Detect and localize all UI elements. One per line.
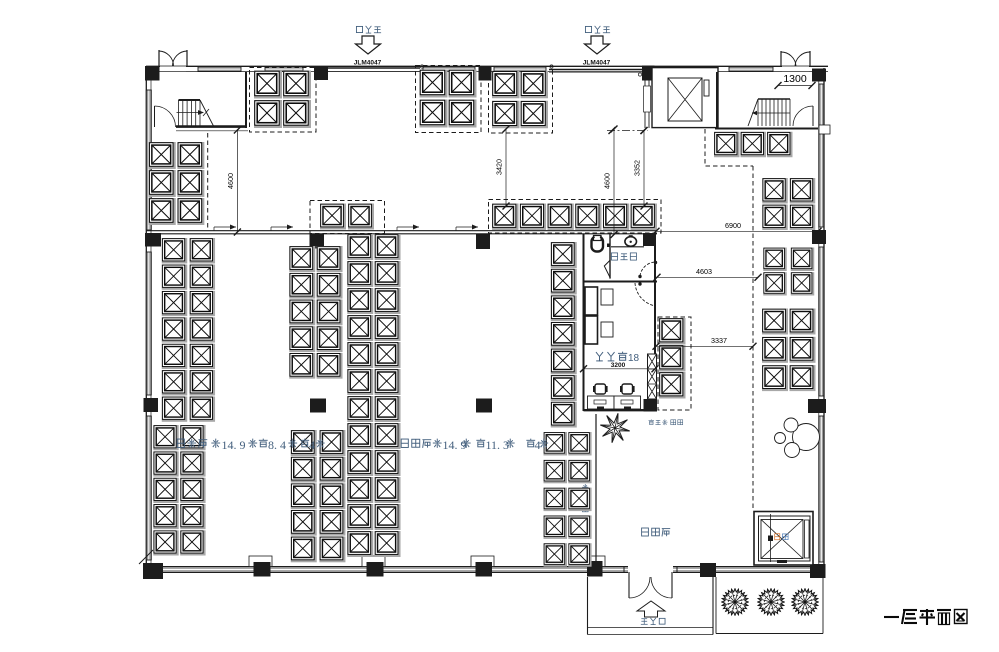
- svg-text:JLM4047: JLM4047: [354, 60, 382, 67]
- svg-text:JLM4047: JLM4047: [583, 60, 611, 67]
- svg-text:14. 9: 14. 9: [222, 438, 246, 452]
- svg-text:8. 4: 8. 4: [268, 438, 286, 452]
- svg-text:4: 4: [535, 438, 541, 452]
- svg-text:4: 4: [309, 438, 315, 452]
- svg-text:14. 9: 14. 9: [443, 438, 467, 452]
- svg-text:3200: 3200: [611, 362, 626, 369]
- svg-text:18: 18: [628, 353, 640, 364]
- svg-text:11. 3: 11. 3: [486, 438, 510, 452]
- svg-text:3337: 3337: [711, 336, 727, 345]
- svg-text:4600: 4600: [226, 173, 235, 189]
- svg-text:4600: 4600: [603, 173, 612, 189]
- svg-text:6900: 6900: [725, 221, 741, 230]
- svg-text:3352: 3352: [633, 160, 642, 176]
- svg-text:1300: 1300: [783, 73, 807, 85]
- svg-text:4603: 4603: [696, 267, 712, 276]
- svg-text:3420: 3420: [495, 159, 504, 175]
